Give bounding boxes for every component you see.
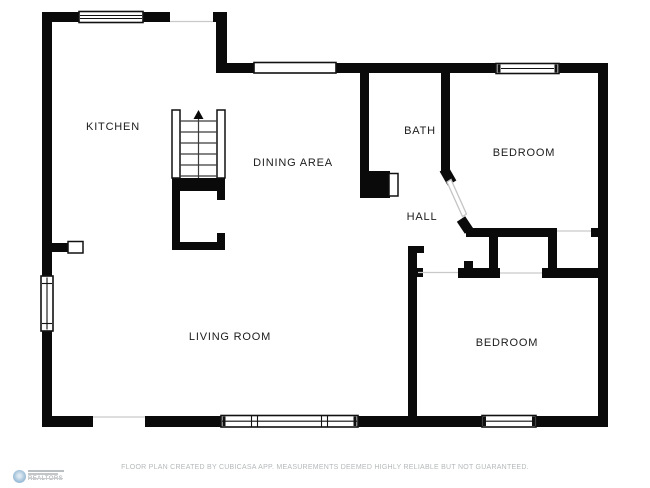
realtor-logo-tagline-bar <box>28 470 64 472</box>
bath-fixture <box>360 171 398 198</box>
room-label-living-room: LIVING ROOM <box>189 331 271 343</box>
stairs-up-arrow-icon <box>194 110 204 119</box>
room-label-hall: HALL <box>407 211 438 223</box>
floor-plan-drawing <box>0 0 650 488</box>
realtor-logo-text: REALTORS <box>28 476 64 483</box>
under-stair-closet-walls <box>172 178 225 250</box>
door-leaf <box>447 180 467 217</box>
realtor-logo-globe-icon <box>13 470 26 483</box>
room-label-kitchen: KITCHEN <box>86 121 140 133</box>
footer-disclaimer: FLOOR PLAN CREATED BY CUBICASA APP. MEAS… <box>0 464 650 471</box>
room-label-dining-area: DINING AREA <box>253 157 333 169</box>
realtor-logo-tagline-bar <box>28 473 58 475</box>
room-label-bath: BATH <box>404 125 436 137</box>
interior-walls <box>360 70 598 416</box>
room-label-bedroom-top: BEDROOM <box>493 147 555 159</box>
staircase <box>172 110 225 178</box>
left-wall-fixture <box>52 242 83 254</box>
realtor-logo: REALTORS <box>13 470 64 483</box>
windows <box>41 12 559 428</box>
room-label-bedroom-bottom: BEDROOM <box>476 337 538 349</box>
floor-plan-canvas: KITCHEN DINING AREA BATH BEDROOM HALL LI… <box>0 0 650 488</box>
